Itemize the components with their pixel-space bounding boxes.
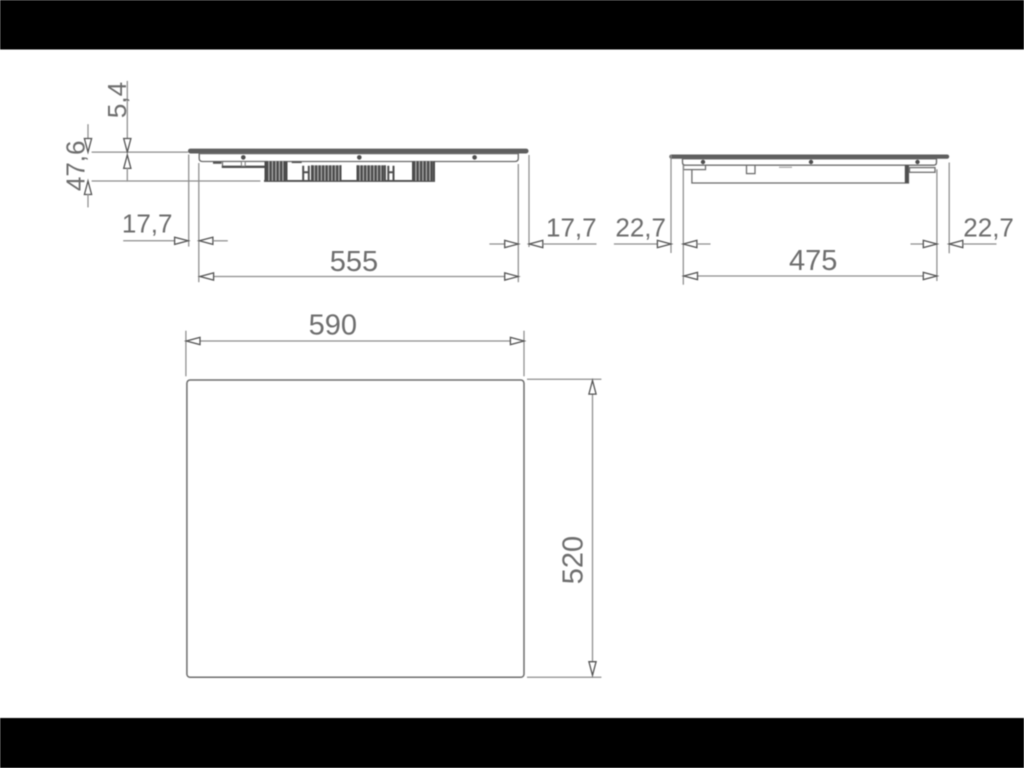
svg-text:22,7: 22,7 (963, 213, 1014, 243)
svg-text:47,6: 47,6 (61, 140, 91, 191)
svg-text:17,7: 17,7 (546, 213, 597, 243)
svg-text:22,7: 22,7 (615, 213, 666, 243)
svg-text:555: 555 (330, 246, 378, 278)
svg-text:520: 520 (558, 536, 590, 584)
svg-text:475: 475 (789, 245, 837, 277)
svg-text:590: 590 (309, 310, 357, 342)
svg-text:17,7: 17,7 (122, 209, 173, 239)
svg-text:5,4: 5,4 (102, 82, 132, 118)
